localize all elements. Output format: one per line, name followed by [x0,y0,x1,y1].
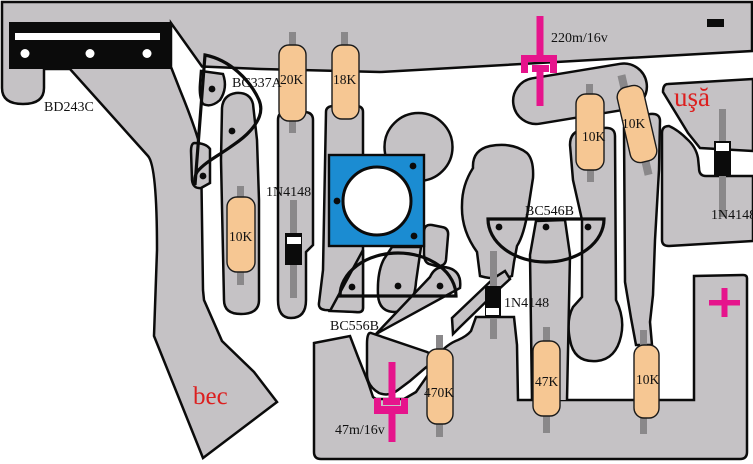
svg-text:10K: 10K [636,372,660,387]
svg-text:BC556B: BC556B [330,319,379,334]
svg-text:47K: 47K [535,374,559,389]
svg-text:1N4148: 1N4148 [266,185,311,200]
svg-text:10K: 10K [229,229,253,244]
svg-text:1N4148: 1N4148 [711,208,753,223]
svg-text:10K: 10K [622,116,646,131]
svg-text:BC546B: BC546B [525,204,574,219]
svg-text:BD243C: BD243C [44,100,94,115]
svg-text:47m/16v: 47m/16v [335,423,385,438]
svg-text:BC337A: BC337A [232,76,283,91]
svg-text:1N4148: 1N4148 [504,296,549,311]
svg-text:470K: 470K [424,385,454,400]
svg-text:10K: 10K [582,129,606,144]
svg-text:bec: bec [193,383,228,410]
svg-text:uşă: uşă [674,82,710,112]
svg-text:20K: 20K [280,72,304,87]
svg-text:220m/16v: 220m/16v [551,31,608,46]
svg-text:18K: 18K [333,72,357,87]
